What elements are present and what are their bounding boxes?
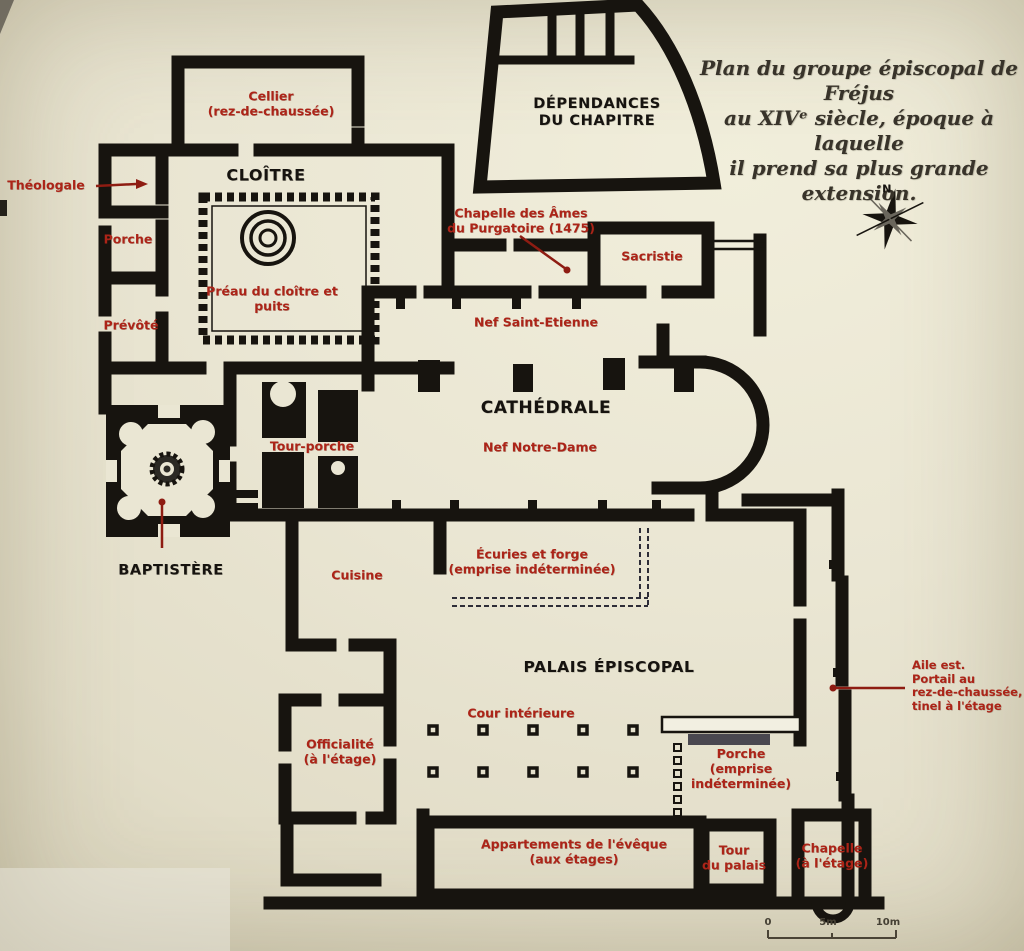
scale-bar bbox=[768, 930, 896, 938]
ecuries-dashed-boundary bbox=[452, 528, 648, 606]
plan-caption: Plan du groupe épiscopal de Fréjus au XI… bbox=[694, 56, 1024, 206]
cloister-garth bbox=[203, 197, 375, 340]
baptistery bbox=[106, 405, 230, 537]
well-icon bbox=[242, 212, 294, 264]
courtyard-columns bbox=[429, 726, 637, 776]
page: Plan du groupe épiscopal de Fréjus au XI… bbox=[0, 0, 1024, 951]
dependances-outline bbox=[480, 5, 714, 187]
dashed-boundaries bbox=[452, 528, 800, 816]
porche-dashed-boundary bbox=[662, 717, 800, 816]
apse-wall bbox=[700, 362, 763, 488]
